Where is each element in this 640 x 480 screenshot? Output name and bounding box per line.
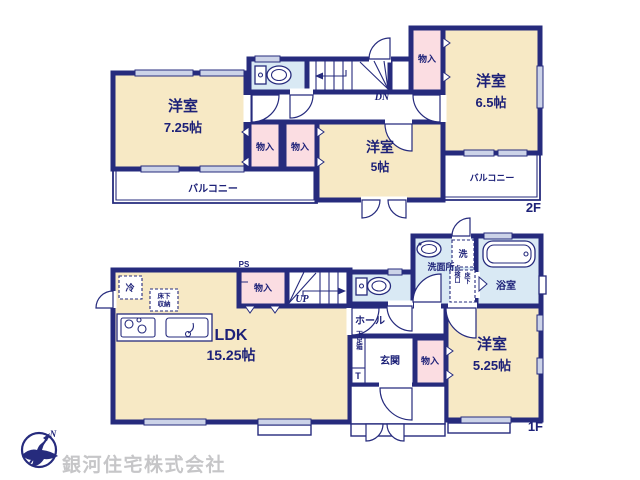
stairs-dn-label: DN <box>374 92 390 103</box>
terrace-step-east <box>448 423 510 433</box>
room-2f-east-label: 洋室 <box>476 72 506 90</box>
room-2f-east <box>443 28 540 153</box>
balcony-right-label: バルコニー <box>470 173 515 183</box>
room-1f-east-size: 5.25帖 <box>473 358 511 373</box>
compass-n-label: N <box>49 429 57 439</box>
casement-window-washroom <box>452 218 470 236</box>
gap-room-2f-west-door <box>244 95 251 122</box>
bath-controller <box>539 276 546 294</box>
washbasin-icon <box>417 241 441 257</box>
terrace-step-ldk <box>258 425 311 435</box>
room-2f-east-size: 6.5帖 <box>475 95 506 110</box>
floor-tag-2f: 2F <box>526 200 541 215</box>
underfloor-storage-line1: 床下 <box>158 291 172 300</box>
ldk-size: 15.25帖 <box>206 347 255 363</box>
hall-label: ホール <box>355 315 385 327</box>
underfloor-storage-line2: 収納 <box>158 299 172 308</box>
company-name: 銀河住宅株式会社 <box>62 453 226 476</box>
closet-2f-left-label: 物入 <box>256 141 274 152</box>
entry-outswing-right <box>387 424 404 441</box>
closet-1f-top-label: 物入 <box>254 282 272 293</box>
floor-1f: LDK 15.25帖 洋室 5.25帖 冷 床下 収納 PS 物入 UP ホール… <box>96 218 546 441</box>
inspection-hatch-label: 点検口 <box>453 264 460 284</box>
company-logo: N 銀河住宅株式会社 <box>22 429 226 476</box>
floor-2f: 洋室 7.25帖 洋室 6.5帖 洋室 5帖 物入 物入 物入 バルコニー バル… <box>113 28 543 218</box>
kitchen-counter <box>117 314 212 341</box>
fridge-label: 冷 <box>125 282 134 293</box>
floor-plan-page: 洋室 7.25帖 洋室 6.5帖 洋室 5帖 物入 物入 物入 バルコニー バル… <box>0 0 640 480</box>
room-2f-west-size: 7.25帖 <box>164 120 202 135</box>
stair-landing-2f <box>390 59 411 92</box>
shoe-box-t-label: T <box>355 371 361 381</box>
entry-label: 玄関 <box>380 354 400 367</box>
bathroom-label: 浴室 <box>496 279 516 292</box>
room-1f-east-label: 洋室 <box>477 335 507 353</box>
gap-washroom-door <box>414 303 441 310</box>
inspection-floor-label: 床下 <box>463 271 470 285</box>
balcony-left-label: バルコニー <box>188 183 238 195</box>
bathtub-icon <box>483 241 535 267</box>
washer-label: 洗 <box>458 248 467 259</box>
room-2f-center-size: 5帖 <box>371 159 390 174</box>
toilet-icon-1f <box>356 278 391 296</box>
closet-2f-center-label: 物入 <box>291 141 309 152</box>
room-2f-center-label: 洋室 <box>366 139 394 155</box>
room-2f-west-label: 洋室 <box>168 97 198 115</box>
casement-window-stairs-2f <box>369 38 390 59</box>
stairs-up-label: UP <box>295 294 309 305</box>
entry-outswing-left <box>366 424 383 441</box>
closet-2f-right-label: 物入 <box>418 53 436 64</box>
toilet-icon-2f <box>255 66 291 84</box>
casement-window-2f-south-right <box>388 200 406 218</box>
washroom-label: 洗面所 <box>427 261 454 272</box>
casement-window-2f-south-left <box>362 200 380 218</box>
ldk-label: LDK <box>215 327 248 344</box>
pipe-space-label: PS <box>239 260 250 269</box>
closet-1f-entry-label: 物入 <box>421 355 439 366</box>
casement-window-kitchen <box>96 291 113 308</box>
floor-tag-1f: 1F <box>528 419 543 434</box>
